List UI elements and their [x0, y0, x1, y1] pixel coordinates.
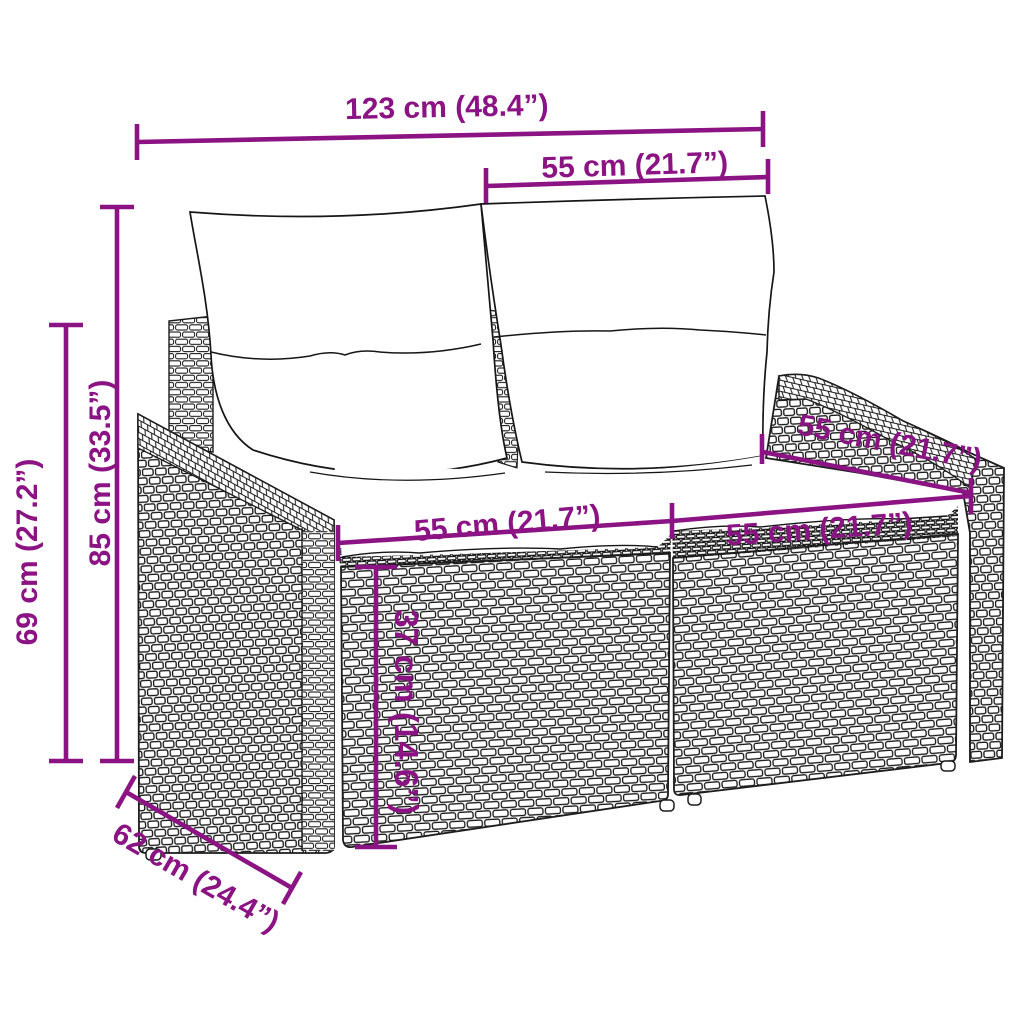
svg-text:55 cm (21.7”): 55 cm (21.7”)	[541, 146, 729, 185]
svg-text:85 cm (33.5”): 85 cm (33.5”)	[84, 380, 117, 567]
svg-text:37 cm (14.6”): 37 cm (14.6”)	[388, 609, 425, 814]
svg-text:69 cm (27.2”): 69 cm (27.2”)	[11, 459, 44, 646]
svg-text:123 cm (48.4”): 123 cm (48.4”)	[345, 89, 549, 126]
